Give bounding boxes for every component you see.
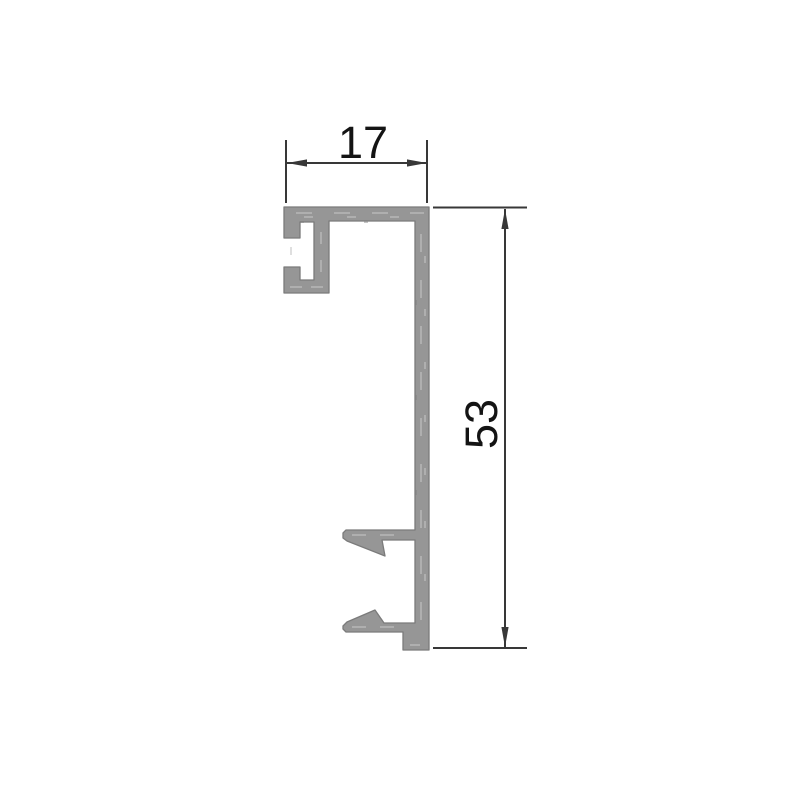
width-arrowhead-right bbox=[407, 159, 427, 166]
width-arrowhead-left bbox=[287, 159, 307, 166]
profile bbox=[284, 207, 429, 650]
technical-drawing-canvas: 17 53 bbox=[0, 0, 800, 800]
height-dimension-value: 53 bbox=[456, 399, 507, 449]
height-arrowhead-top bbox=[501, 209, 508, 229]
width-dimension: 17 bbox=[286, 117, 427, 203]
extrusion-texture bbox=[290, 213, 426, 645]
drawing-page: 17 53 bbox=[0, 0, 800, 800]
width-dimension-value: 17 bbox=[338, 117, 388, 168]
height-arrowhead-bottom bbox=[501, 627, 508, 647]
height-dimension: 53 bbox=[433, 208, 527, 649]
profile-cross-section-shape bbox=[284, 207, 429, 650]
